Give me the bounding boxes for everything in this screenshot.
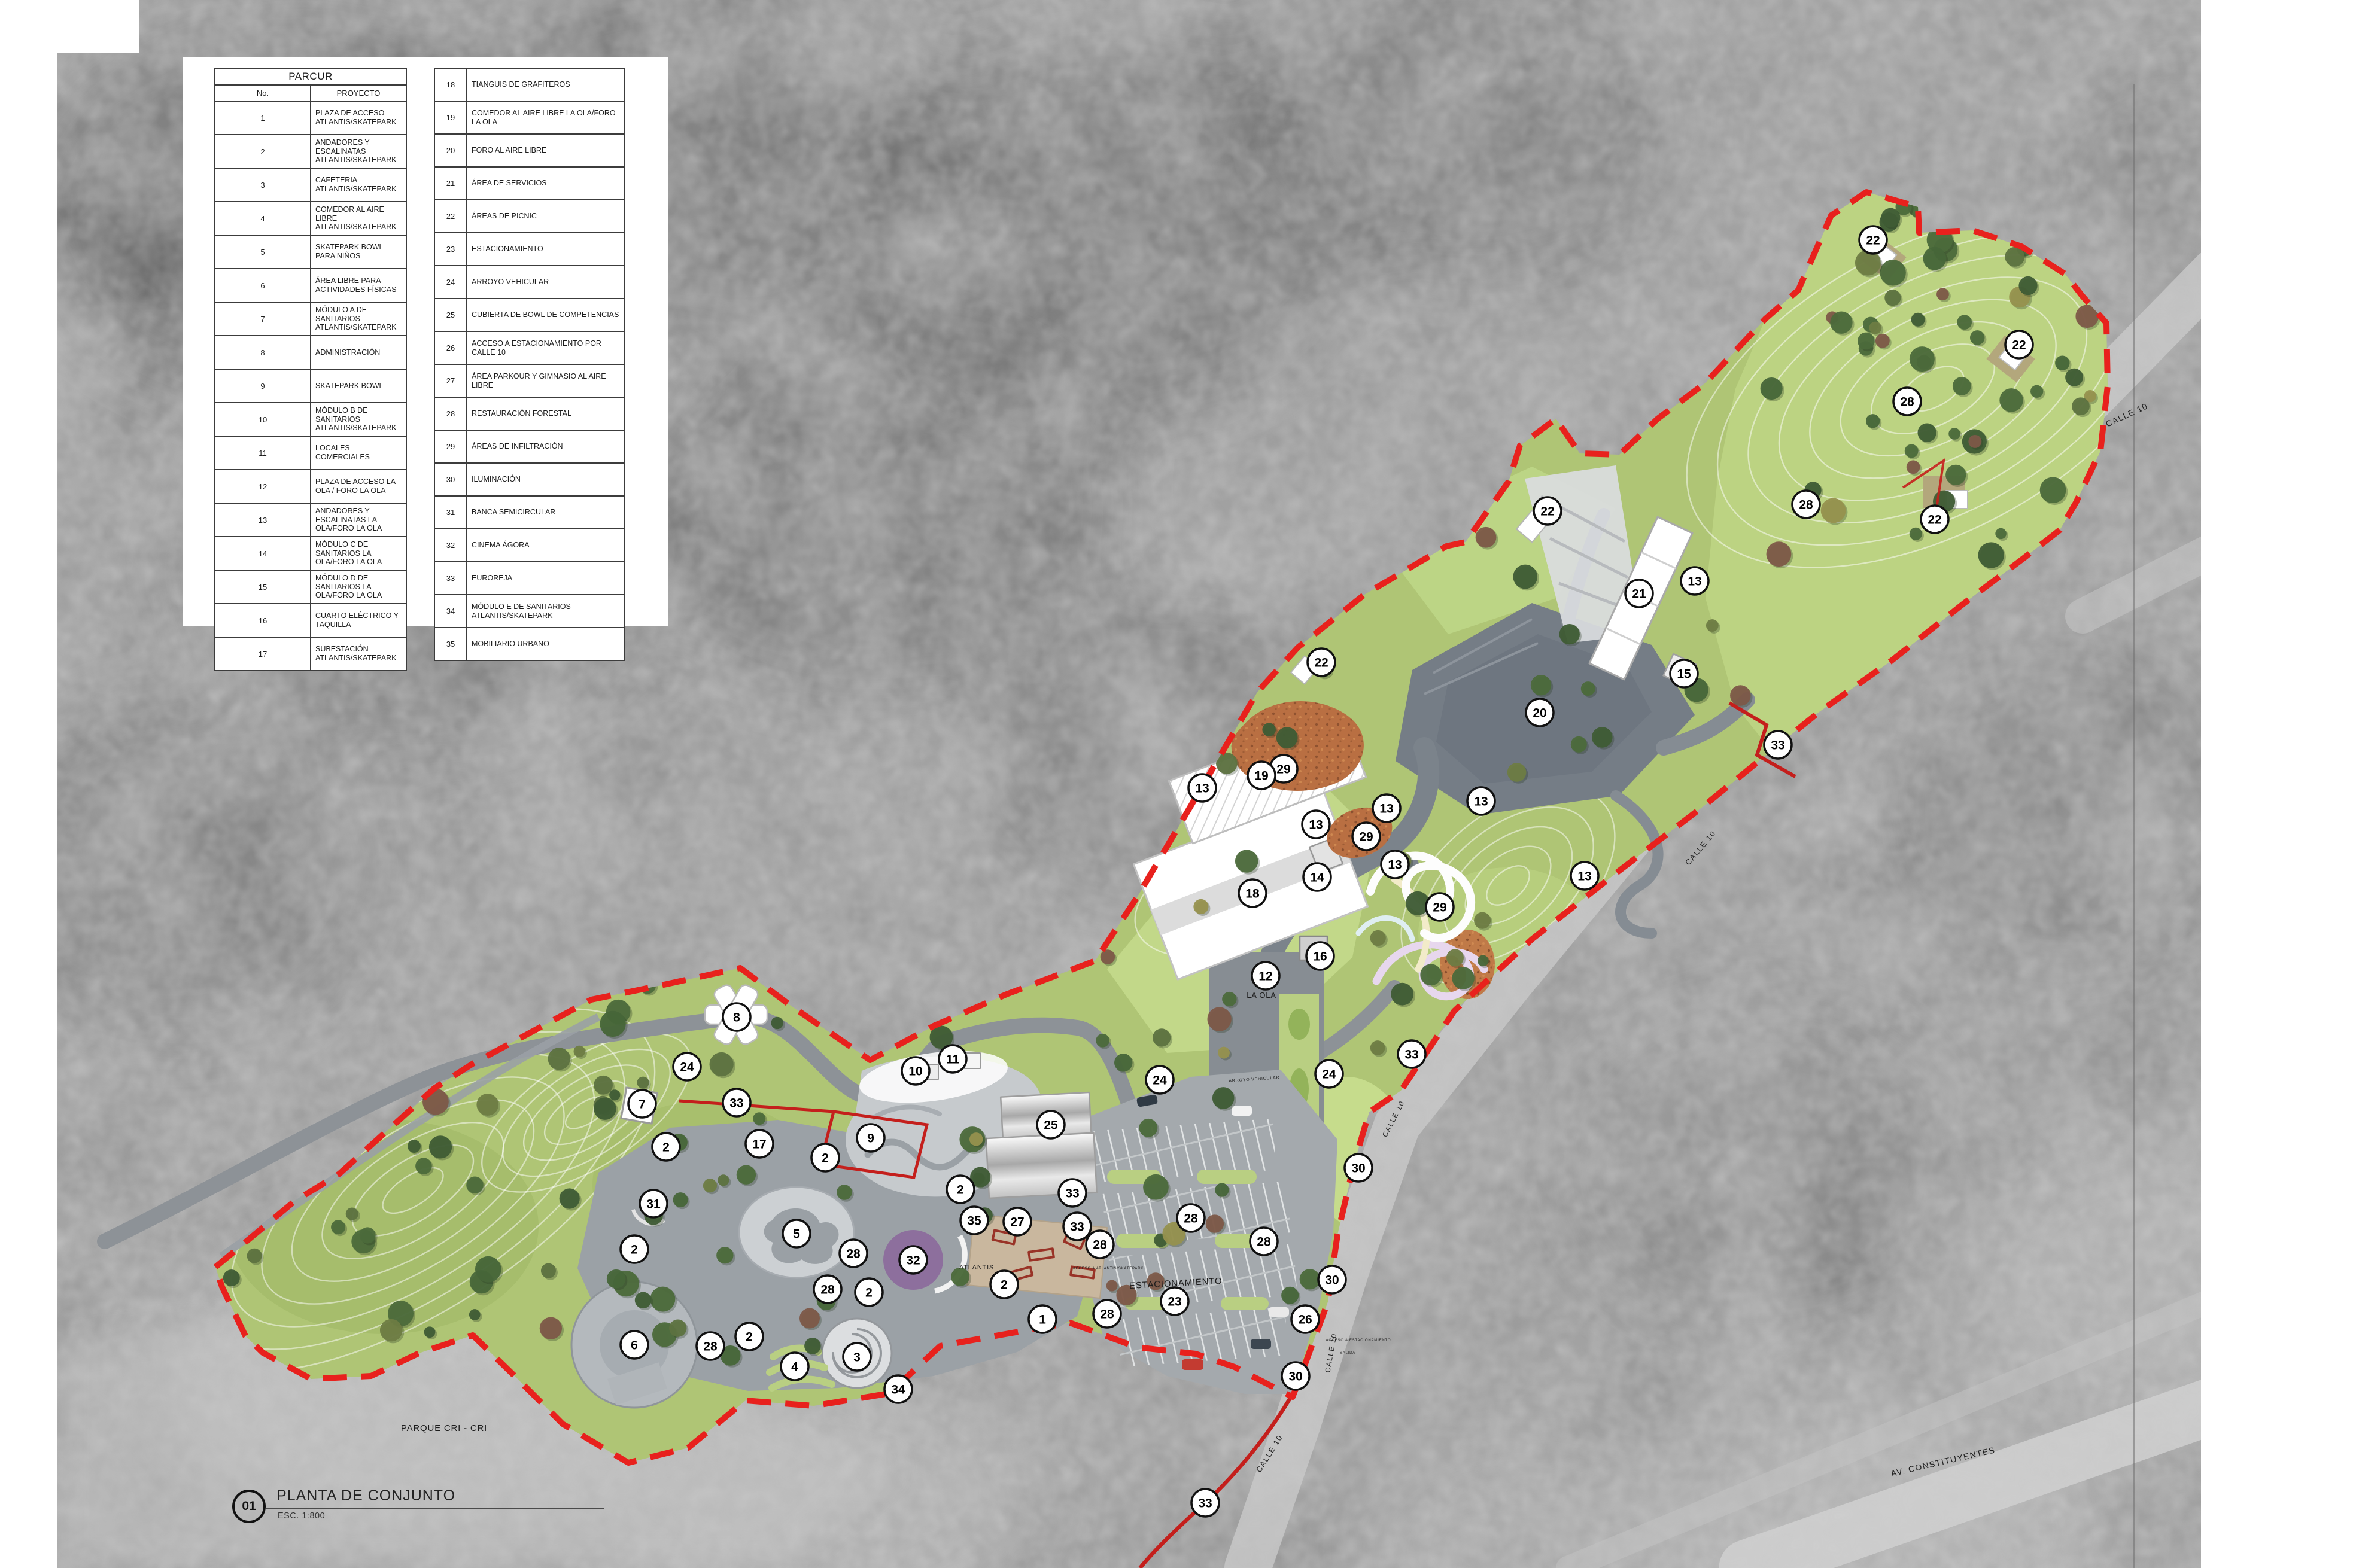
tree-icon: [1968, 435, 1981, 448]
plan-marker-number: 22: [1866, 234, 1880, 248]
plan-marker-number: 33: [1771, 739, 1784, 753]
plan-marker-24: 24: [673, 1053, 701, 1080]
plan-marker-33: 33: [723, 1089, 750, 1116]
tree-icon: [2055, 356, 2069, 370]
plan-marker-number: 3: [853, 1351, 861, 1365]
tree-icon: [540, 1317, 562, 1339]
legend-row-label: ÁREAS DE INFILTRACIÓN: [467, 430, 625, 463]
legend-row: 25CUBIERTA DE BOWL DE COMPETENCIAS: [434, 299, 625, 331]
tree-icon: [380, 1319, 403, 1342]
plan-marker-number: 28: [703, 1340, 718, 1354]
plan-marker-number: 23: [1168, 1295, 1181, 1309]
legend-row: 23ESTACIONAMIENTO: [434, 233, 625, 266]
legend-row-label: MÓDULO B DE SANITARIOS ATLANTIS/SKATEPAR…: [311, 403, 406, 436]
plan-marker-30: 30: [1345, 1154, 1372, 1182]
plan-marker-31: 31: [640, 1190, 667, 1217]
legend-row: 5SKATEPARK BOWL PARA NIÑOS: [215, 235, 406, 269]
plan-marker-number: 32: [906, 1254, 920, 1268]
plan-marker-number: 2: [822, 1152, 829, 1165]
plan-marker-number: 17: [752, 1138, 766, 1152]
tree-icon: [1945, 465, 1966, 485]
plan-marker-32: 32: [899, 1246, 927, 1274]
plan-marker-number: 13: [1577, 870, 1591, 884]
plan-marker-number: 27: [1010, 1216, 1024, 1229]
tree-icon: [1370, 930, 1386, 946]
plan-marker-number: 30: [1351, 1162, 1365, 1176]
legend-row-label: SUBESTACIÓN ATLANTIS/SKATEPARK: [311, 637, 406, 671]
legend-row-label: BANCA SEMICIRCULAR: [467, 496, 625, 529]
legend-row-label: CUBIERTA DE BOWL DE COMPETENCIAS: [467, 299, 625, 331]
area-label: SALIDA: [1340, 1351, 1355, 1355]
plan-marker-number: 13: [1474, 795, 1488, 809]
tree-icon: [1999, 388, 2023, 412]
legend-row: 20FORO AL AIRE LIBRE: [434, 134, 625, 167]
plan-marker-number: 29: [1276, 763, 1290, 777]
tree-icon: [574, 1046, 585, 1057]
plan-marker-33: 33: [1191, 1489, 1219, 1517]
legend-row-label: ACCESO A ESTACIONAMIENTO POR CALLE 10: [467, 331, 625, 364]
title-block: 01 PLANTA DE CONJUNTO ESC. 1:800: [232, 1487, 615, 1535]
tree-icon: [1869, 322, 1881, 334]
tree-icon: [1970, 330, 1984, 345]
legend-row: 11LOCALES COMERCIALES: [215, 436, 406, 470]
legend-row-label: ANDADORES Y ESCALINATAS ATLANTIS/SKATEPA…: [311, 135, 406, 168]
legend-row: 30ILUMINACIÓN: [434, 463, 625, 496]
plan-marker-8: 8: [723, 1003, 750, 1031]
plan-marker-number: 13: [1309, 818, 1323, 832]
plan-marker-number: 25: [1044, 1119, 1058, 1132]
plan-marker-number: 28: [1093, 1238, 1107, 1252]
plan-marker-28: 28: [1093, 1300, 1121, 1328]
legend-row-label: CAFETERIA ATLANTIS/SKATEPARK: [311, 168, 406, 202]
plan-marker-19: 19: [1248, 762, 1275, 789]
legend-row-label: ILUMINACIÓN: [467, 463, 625, 496]
tree-icon: [1391, 983, 1413, 1006]
plan-marker-33: 33: [1063, 1213, 1091, 1240]
plan-marker-11: 11: [939, 1045, 966, 1073]
legend-row: 33EUROREJA: [434, 562, 625, 595]
plan-marker-number: 24: [1153, 1074, 1167, 1088]
legend-table-left: PARCUR No. PROYECTO 1PLAZA DE ACCESO ATL…: [214, 68, 407, 671]
tree-icon: [1821, 498, 1846, 523]
plan-marker-2: 2: [652, 1133, 680, 1161]
plan-marker-number: 22: [1314, 656, 1328, 670]
tree-icon: [1300, 1269, 1320, 1289]
tree-icon: [1911, 313, 1925, 327]
plan-marker-number: 2: [865, 1286, 873, 1300]
tree-icon: [469, 1309, 481, 1320]
plan-marker-1: 1: [1029, 1305, 1056, 1333]
legend-row-label: COMEDOR AL AIRE LIBRE ATLANTIS/SKATEPARK: [311, 202, 406, 235]
tree-icon: [560, 1188, 580, 1208]
tree-icon: [637, 1077, 649, 1089]
legend-row-label: CINEMA ÁGORA: [467, 529, 625, 562]
tree-icon: [1767, 541, 1792, 567]
legend-row-number: 9: [215, 369, 311, 403]
tree-icon: [1858, 333, 1875, 350]
plan-marker-number: 28: [846, 1247, 861, 1261]
tree-icon: [1153, 1028, 1171, 1046]
tree-icon: [2072, 397, 2090, 415]
tree-icon: [600, 1011, 625, 1037]
plan-marker-9: 9: [857, 1124, 884, 1152]
tree-icon: [476, 1094, 498, 1116]
legend-row-number: 16: [215, 604, 311, 637]
legend-row-number: 19: [434, 101, 467, 134]
plan-marker-number: 14: [1310, 871, 1324, 885]
plan-marker-22: 22: [2005, 331, 2033, 358]
plan-marker-number: 26: [1298, 1313, 1312, 1327]
legend-row: 3CAFETERIA ATLANTIS/SKATEPARK: [215, 168, 406, 202]
plan-marker-number: 13: [1195, 782, 1209, 796]
tree-icon: [1474, 912, 1491, 929]
plan-marker-number: 24: [680, 1061, 694, 1074]
tree-icon: [837, 1185, 852, 1200]
legend-table-right: 18TIANGUIS DE GRAFITEROS19COMEDOR AL AIR…: [434, 68, 625, 661]
plan-marker-2: 2: [990, 1271, 1018, 1298]
tree-icon: [607, 1269, 626, 1289]
plan-marker-number: 5: [793, 1228, 800, 1241]
tree-icon: [635, 1292, 652, 1309]
legend-row: 27ÁREA PARKOUR Y GIMNASIO AL AIRE LIBRE: [434, 364, 625, 397]
tree-icon: [1101, 949, 1115, 964]
tree-icon: [753, 1112, 765, 1125]
legend-row: 8ADMINISTRACIÓN: [215, 336, 406, 369]
plan-marker-number: 4: [791, 1360, 798, 1374]
legend-row-number: 11: [215, 436, 311, 470]
tree-icon: [331, 1220, 345, 1234]
legend-row: 14MÓDULO C DE SANITARIOS LA OLA/FORO LA …: [215, 537, 406, 570]
tree-icon: [1215, 1183, 1229, 1196]
legend-col-project: PROYECTO: [311, 85, 406, 101]
legend-row: 34MÓDULO E DE SANITARIOS ATLANTIS/SKATEP…: [434, 595, 625, 628]
area-label: ATLANTIS: [959, 1264, 994, 1271]
legend-row-label: FORO AL AIRE LIBRE: [467, 134, 625, 167]
plan-marker-2: 2: [947, 1176, 974, 1203]
tree-icon: [1281, 1287, 1299, 1304]
legend-row: 21ÁREA DE SERVICIOS: [434, 167, 625, 200]
legend-row-label: PLAZA DE ACCESO ATLANTIS/SKATEPARK: [311, 101, 406, 135]
legend-row-number: 15: [215, 570, 311, 604]
tree-icon: [1212, 1087, 1235, 1109]
area-label: ACCESO A ATLANTIS/SKATEPARK: [1073, 1267, 1144, 1271]
tree-icon: [737, 1165, 756, 1184]
plan-marker-number: 11: [946, 1053, 960, 1067]
plan-marker-28: 28: [840, 1240, 867, 1267]
legend-row: 32CINEMA ÁGORA: [434, 529, 625, 562]
tree-icon: [1476, 527, 1497, 548]
plan-marker-number: 33: [729, 1097, 743, 1110]
tree-icon: [1905, 444, 1919, 458]
plan-marker-20: 20: [1526, 699, 1554, 726]
plan-marker-number: 35: [967, 1214, 981, 1228]
tree-icon: [1276, 727, 1298, 748]
plan-marker-29: 29: [1426, 893, 1454, 921]
tree-icon: [1730, 685, 1750, 705]
plan-marker-number: 10: [908, 1065, 922, 1079]
legend-row: 15MÓDULO D DE SANITARIOS LA OLA/FORO LA …: [215, 570, 406, 604]
plan-marker-35: 35: [960, 1207, 988, 1234]
plan-marker-number: 7: [639, 1098, 646, 1112]
tree-icon: [223, 1269, 240, 1286]
plan-marker-number: 13: [1379, 802, 1393, 816]
tree-icon: [1218, 1047, 1230, 1059]
plan-marker-number: 2: [957, 1183, 964, 1197]
plan-marker-18: 18: [1239, 879, 1266, 907]
area-label: LA OLA: [1247, 991, 1276, 1000]
legend-row-number: 1: [215, 101, 311, 135]
tree-icon: [2065, 369, 2083, 386]
tree-icon: [799, 1308, 820, 1329]
legend-row: 16CUARTO ELÉCTRICO Y TAQUILLA: [215, 604, 406, 637]
plan-marker-29: 29: [1352, 823, 1380, 850]
tree-icon: [429, 1135, 452, 1158]
tree-icon: [2030, 385, 2043, 398]
plan-marker-number: 33: [1070, 1220, 1084, 1234]
tree-icon: [969, 1132, 983, 1146]
plan-marker-number: 8: [733, 1011, 740, 1025]
plan-marker-15: 15: [1670, 660, 1698, 687]
plan-marker-13: 13: [1188, 774, 1216, 802]
legend-row: 24ARROYO VEHICULAR: [434, 266, 625, 299]
legend-row-label: MÓDULO D DE SANITARIOS LA OLA/FORO LA OL…: [311, 570, 406, 604]
plan-marker-28: 28: [1893, 388, 1921, 415]
legend-row: 10MÓDULO B DE SANITARIOS ATLANTIS/SKATEP…: [215, 403, 406, 436]
tree-icon: [673, 1192, 688, 1207]
plan-marker-14: 14: [1303, 863, 1331, 891]
tree-icon: [703, 1179, 717, 1192]
legend-row: 22ÁREAS DE PICNIC: [434, 200, 625, 233]
tree-icon: [594, 1076, 613, 1095]
plan-marker-28: 28: [697, 1332, 724, 1360]
plan-marker-13: 13: [1381, 851, 1409, 878]
plan-marker-28: 28: [1086, 1231, 1114, 1258]
tree-icon: [1206, 1214, 1224, 1232]
plan-marker-number: 21: [1632, 587, 1646, 601]
legend-row-number: 17: [215, 637, 311, 671]
plan-marker-7: 7: [628, 1090, 656, 1118]
legend-row-number: 35: [434, 628, 467, 660]
legend-row-number: 20: [434, 134, 467, 167]
tree-icon: [710, 1052, 734, 1076]
plan-marker-13: 13: [1467, 787, 1495, 815]
tree-icon: [1114, 1054, 1132, 1071]
legend-row-number: 25: [434, 299, 467, 331]
tree-icon: [1957, 315, 1972, 330]
legend-row: 17SUBESTACIÓN ATLANTIS/SKATEPARK: [215, 637, 406, 671]
plan-marker-2: 2: [621, 1235, 648, 1263]
legend-row-number: 3: [215, 168, 311, 202]
plan-marker-22: 22: [1534, 497, 1561, 525]
tree-icon: [1235, 850, 1258, 872]
tree-icon: [1571, 736, 1587, 753]
legend-row-number: 2: [215, 135, 311, 168]
plan-marker-number: 6: [631, 1339, 638, 1353]
plan-marker-number: 29: [1433, 901, 1446, 915]
plan-marker-number: 28: [820, 1283, 835, 1297]
plan-marker-number: 30: [1325, 1274, 1339, 1287]
plan-marker-34: 34: [884, 1375, 912, 1403]
plan-marker-28: 28: [1792, 491, 1820, 518]
legend-row: 26ACCESO A ESTACIONAMIENTO POR CALLE 10: [434, 331, 625, 364]
plan-marker-33: 33: [1059, 1179, 1086, 1207]
legend-row: 1PLAZA DE ACCESO ATLANTIS/SKATEPARK: [215, 101, 406, 135]
legend-row: 4COMEDOR AL AIRE LIBRE ATLANTIS/SKATEPAR…: [215, 202, 406, 235]
plan-marker-16: 16: [1306, 942, 1334, 970]
plan-marker-number: 9: [867, 1132, 874, 1146]
plan-marker-23: 23: [1161, 1287, 1188, 1315]
plan-marker-number: 2: [631, 1243, 638, 1257]
tree-icon: [1096, 1034, 1109, 1048]
legend-row-number: 24: [434, 266, 467, 299]
plan-marker-28: 28: [814, 1275, 841, 1303]
tree-icon: [1910, 346, 1935, 372]
tree-icon: [1761, 377, 1783, 400]
legend-row: 18TIANGUIS DE GRAFITEROS: [434, 68, 625, 101]
plan-marker-number: 13: [1688, 575, 1701, 589]
plan-marker-number: 30: [1288, 1370, 1302, 1384]
plan-marker-number: 33: [1198, 1497, 1212, 1511]
plan-marker-13: 13: [1373, 794, 1400, 822]
tree-icon: [1478, 955, 1489, 967]
legend-row: 31BANCA SEMICIRCULAR: [434, 496, 625, 529]
plan-marker-number: 20: [1533, 707, 1546, 720]
legend-row-label: COMEDOR AL AIRE LIBRE LA OLA/FORO LA OLA: [467, 101, 625, 134]
plan-marker-27: 27: [1004, 1208, 1031, 1235]
area-label: ACCESO A ESTACIONAMIENTO: [1326, 1339, 1391, 1342]
plan-marker-2: 2: [855, 1278, 883, 1306]
plan-marker-number: 2: [1001, 1278, 1008, 1292]
plan-marker-number: 16: [1313, 950, 1327, 964]
tree-icon: [1881, 208, 1900, 227]
plan-marker-number: 34: [891, 1383, 905, 1397]
legend-panel: PARCUR No. PROYECTO 1PLAZA DE ACCESO ATL…: [183, 57, 668, 626]
plan-marker-number: 22: [1928, 513, 1941, 527]
tree-icon: [1910, 528, 1922, 540]
plan-marker-3: 3: [843, 1343, 871, 1371]
tree-icon: [804, 1338, 821, 1354]
area-label: PARQUE CRI - CRI: [401, 1423, 487, 1433]
tree-icon: [1953, 377, 1971, 395]
tree-icon: [346, 1207, 358, 1220]
plan-marker-2: 2: [735, 1323, 763, 1350]
sheet-number-badge: 01: [232, 1490, 266, 1523]
plan-marker-13: 13: [1681, 567, 1708, 595]
plan-marker-17: 17: [746, 1130, 773, 1158]
plan-marker-number: 33: [1065, 1187, 1079, 1201]
plan-marker-30: 30: [1282, 1362, 1309, 1390]
legend-row-label: MÓDULO A DE SANITARIOS ATLANTIS/SKATEPAR…: [311, 302, 406, 336]
plan-marker-number: 18: [1245, 887, 1260, 901]
tree-icon: [650, 1287, 676, 1312]
parking-lot: [1077, 1070, 1337, 1394]
plan-marker-22: 22: [1921, 506, 1948, 533]
plan-marker-28: 28: [1177, 1204, 1205, 1232]
plan-marker-22: 22: [1859, 226, 1887, 254]
legend-row-number: 22: [434, 200, 467, 233]
plan-marker-2: 2: [811, 1144, 839, 1171]
plan-marker-number: 33: [1404, 1048, 1418, 1062]
tree-icon: [415, 1158, 432, 1174]
tree-icon: [541, 1263, 556, 1278]
tree-icon: [1207, 1007, 1231, 1031]
legend-row: 35MOBILIARIO URBANO: [434, 628, 625, 660]
legend-row-number: 4: [215, 202, 311, 235]
legend-row-label: SKATEPARK BOWL: [311, 369, 406, 403]
plan-marker-13: 13: [1302, 811, 1330, 838]
legend-row-number: 27: [434, 364, 467, 397]
tree-icon: [1884, 290, 1901, 306]
legend-row-label: ÁREAS DE PICNIC: [467, 200, 625, 233]
plan-marker-4: 4: [781, 1353, 808, 1380]
legend-row: 13ANDADORES Y ESCALINATAS LA OLA/FORO LA…: [215, 503, 406, 537]
legend-row: 29ÁREAS DE INFILTRACIÓN: [434, 430, 625, 463]
tree-icon: [716, 1247, 733, 1263]
legend-row-number: 14: [215, 537, 311, 570]
plan-marker-21: 21: [1625, 580, 1653, 607]
plan-marker-number: 24: [1322, 1068, 1336, 1082]
legend-row-label: TIANGUIS DE GRAFITEROS: [467, 68, 625, 101]
legend-row-label: ÁREA PARKOUR Y GIMNASIO AL AIRE LIBRE: [467, 364, 625, 397]
legend-row-label: PLAZA DE ACCESO LA OLA / FORO LA OLA: [311, 470, 406, 503]
legend-row-label: ÁREA LIBRE PARA ACTIVIDADES FÍSICAS: [311, 269, 406, 302]
legend-row-label: EUROREJA: [467, 562, 625, 595]
tree-icon: [1420, 964, 1442, 985]
tree-icon: [1592, 727, 1613, 748]
tree-icon: [1581, 681, 1595, 696]
tree-icon: [548, 1048, 570, 1070]
plan-marker-number: 28: [1184, 1212, 1198, 1226]
sheet-title: PLANTA DE CONJUNTO: [276, 1487, 455, 1505]
legend-row: 6ÁREA LIBRE PARA ACTIVIDADES FÍSICAS: [215, 269, 406, 302]
plan-marker-24: 24: [1146, 1066, 1174, 1094]
legend-row-number: 18: [434, 68, 467, 101]
tree-icon: [1139, 1119, 1158, 1137]
plan-marker-number: 2: [746, 1330, 753, 1344]
tree-icon: [1143, 1174, 1169, 1200]
plan-marker-10: 10: [902, 1057, 929, 1085]
tree-icon: [1559, 624, 1580, 644]
plan-marker-25: 25: [1037, 1111, 1065, 1138]
tree-icon: [1978, 542, 2004, 568]
legend-row-number: 29: [434, 430, 467, 463]
tree-icon: [1446, 949, 1464, 966]
legend-row-number: 28: [434, 397, 467, 430]
tree-icon: [1452, 967, 1474, 989]
legend-row-label: CUARTO ELÉCTRICO Y TAQUILLA: [311, 604, 406, 637]
tree-icon: [1370, 1040, 1385, 1055]
plan-marker-26: 26: [1291, 1305, 1319, 1333]
legend-row-label: MÓDULO C DE SANITARIOS LA OLA/FORO LA OL…: [311, 537, 406, 570]
tree-icon: [1193, 899, 1208, 914]
tree-icon: [1262, 723, 1276, 736]
legend-row-label: ARROYO VEHICULAR: [467, 266, 625, 299]
tree-icon: [1507, 763, 1527, 782]
tree-icon: [2040, 477, 2066, 503]
legend-row-label: MÓDULO E DE SANITARIOS ATLANTIS/SKATEPAR…: [467, 595, 625, 628]
tree-icon: [718, 1174, 729, 1186]
tree-icon: [771, 1017, 783, 1029]
legend-row: 7MÓDULO A DE SANITARIOS ATLANTIS/SKATEPA…: [215, 302, 406, 336]
legend-row: 28RESTAURACIÓN FORESTAL: [434, 397, 625, 430]
plan-marker-12: 12: [1252, 962, 1279, 989]
plan-marker-13: 13: [1571, 862, 1598, 890]
plan-marker-22: 22: [1308, 648, 1335, 676]
legend-row-label: SKATEPARK BOWL PARA NIÑOS: [311, 235, 406, 269]
legend-row-number: 31: [434, 496, 467, 529]
tree-icon: [1917, 424, 1936, 442]
legend-row-number: 21: [434, 167, 467, 200]
